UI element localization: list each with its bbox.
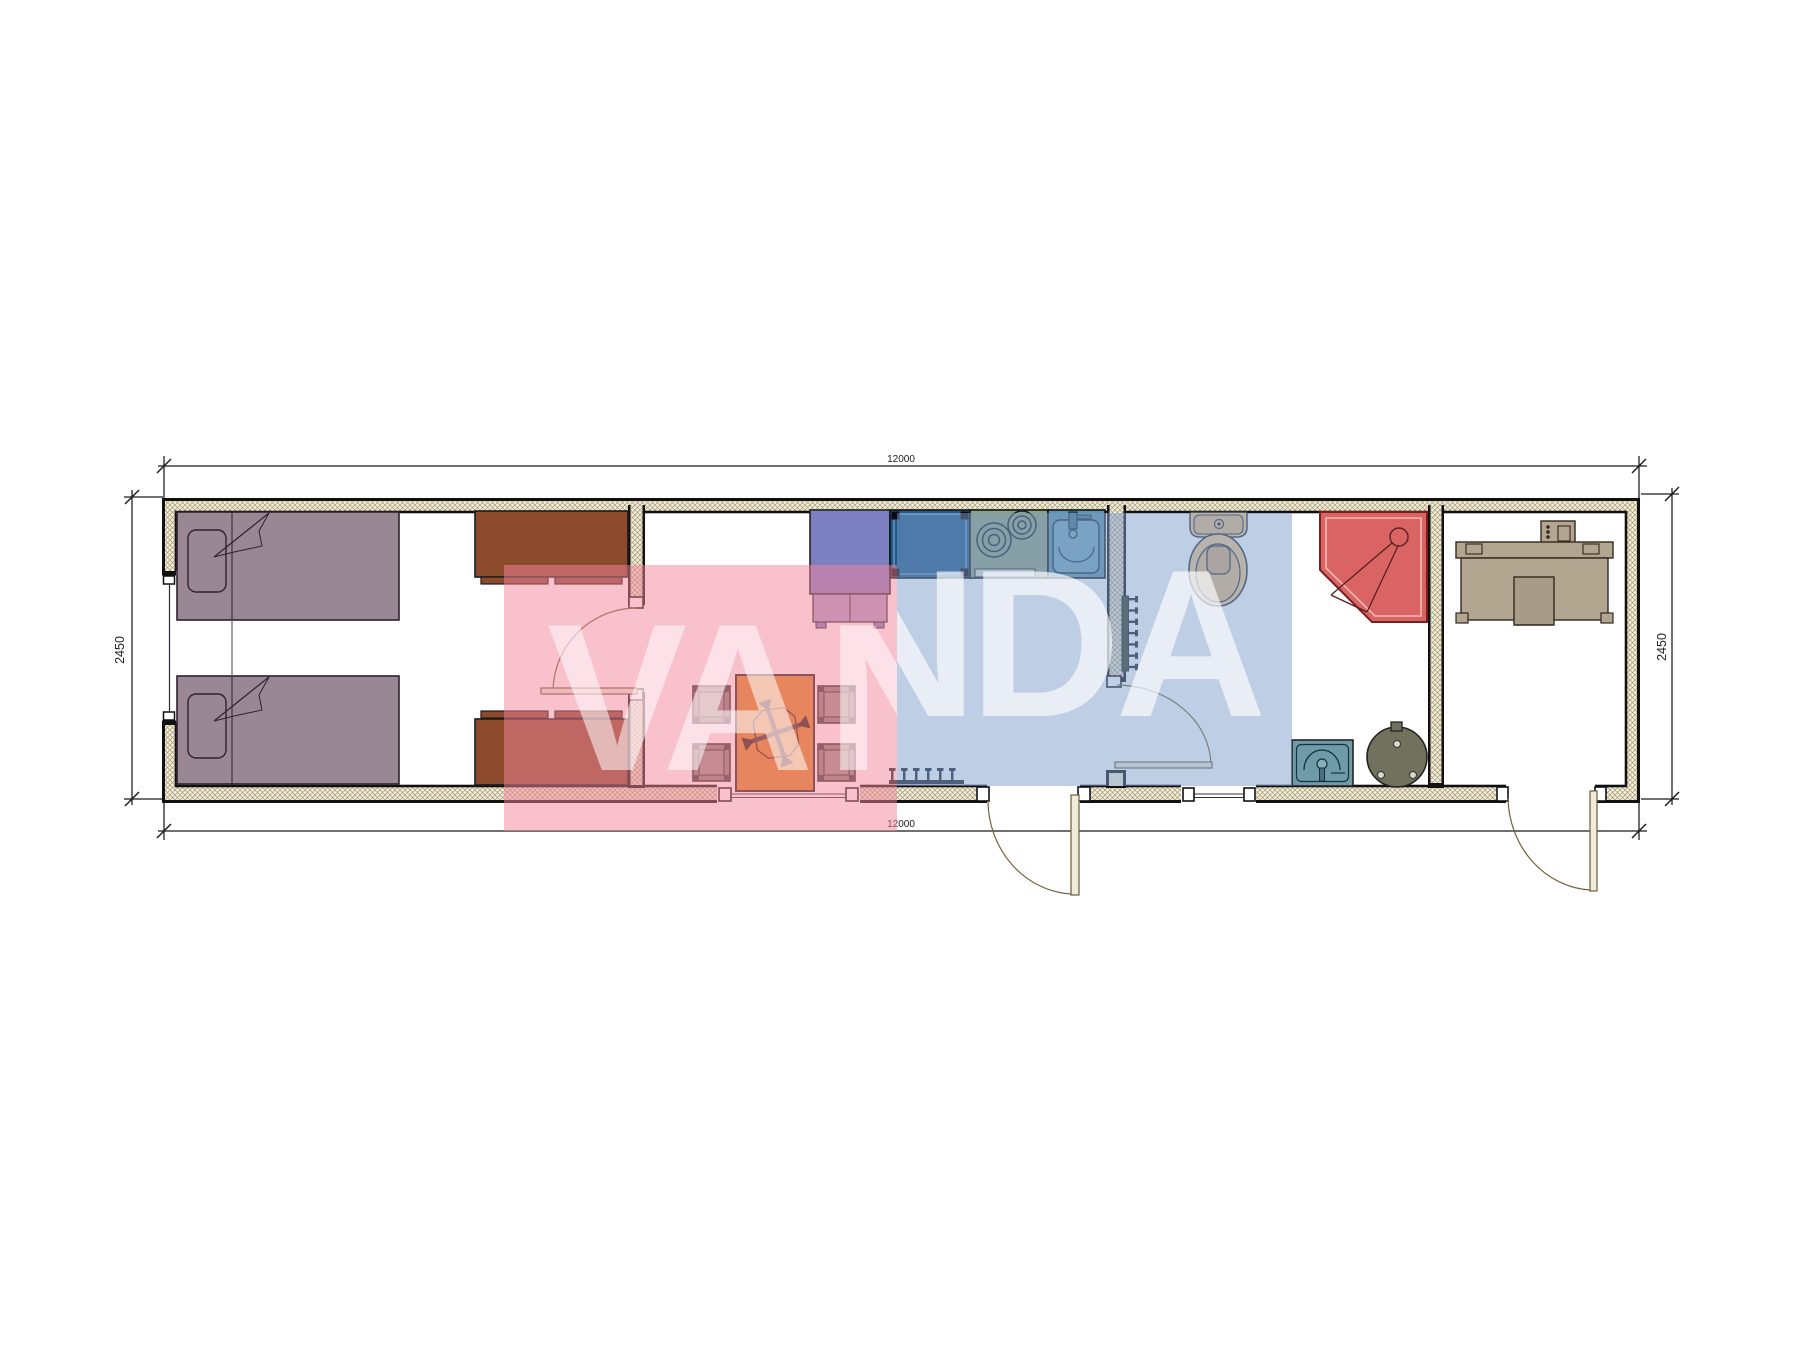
svg-text:12000: 12000 (887, 454, 915, 465)
svg-text:A: A (1115, 526, 1267, 761)
svg-text:D: D (969, 526, 1121, 761)
svg-text:A: A (662, 580, 814, 815)
svg-text:2450: 2450 (1655, 633, 1669, 661)
svg-text:2450: 2450 (113, 636, 127, 664)
